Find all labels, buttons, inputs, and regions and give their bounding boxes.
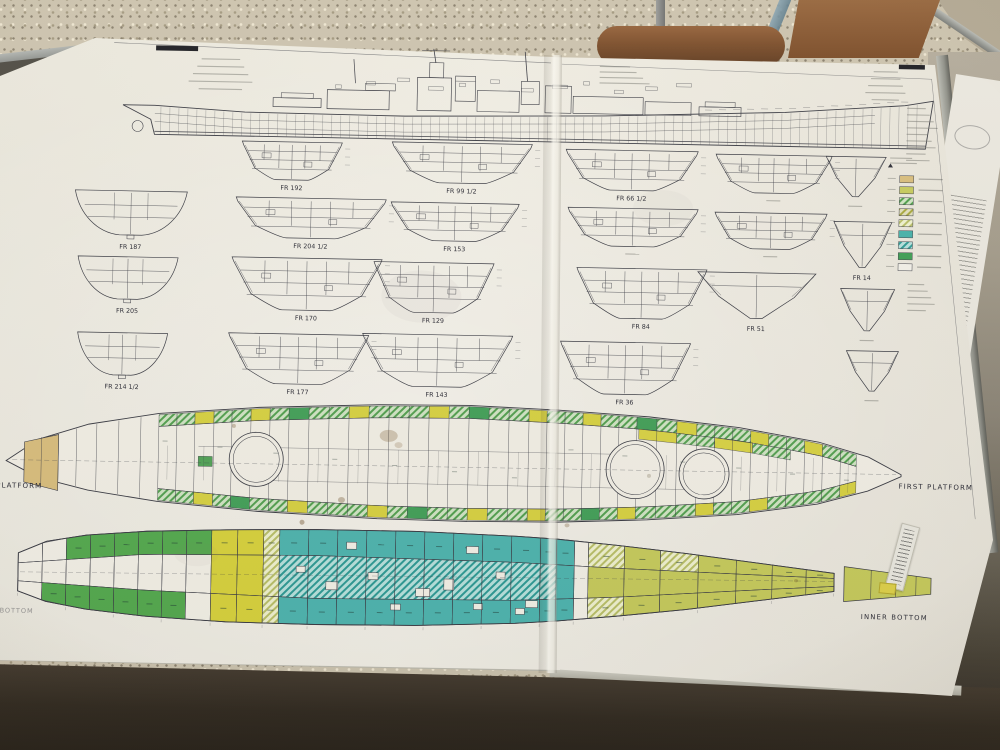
hull-section	[833, 221, 892, 268]
paper-stain	[381, 270, 462, 324]
legend-swatch	[899, 209, 913, 216]
hull-section	[77, 332, 168, 380]
frame-label: FR 36	[615, 399, 633, 406]
legend-swatch	[898, 242, 912, 249]
hull-section	[565, 149, 706, 192]
legend-swatch	[899, 187, 913, 194]
first-platform-plan: FIRST PLATFORMFIRST PLATFORM	[0, 396, 974, 531]
legend-marker	[888, 163, 893, 167]
hull-section	[236, 197, 395, 240]
hull-section	[560, 341, 699, 396]
frame-label: FR 177	[286, 389, 308, 396]
hull-section	[715, 154, 840, 194]
hull-section	[840, 289, 895, 332]
hull-section	[846, 351, 899, 392]
deck-label-inner-bottom-left: INNER BOTTOM	[0, 606, 34, 615]
deck-label-first-platform-left: FIRST PLATFORM	[0, 481, 42, 490]
legend-swatch	[899, 231, 913, 238]
barbette-circle	[606, 440, 665, 499]
hull-section	[362, 333, 521, 388]
chair-backrest	[788, 0, 940, 58]
frame-label: FR 153	[443, 246, 465, 253]
plan-content: FR 187FR 205FR 214 1/2FR 192FR 99 1/2FR …	[0, 30, 984, 642]
title-mark-right	[899, 65, 925, 70]
paper-stain	[564, 523, 569, 527]
hull-section	[714, 212, 835, 250]
hull-section	[390, 202, 527, 243]
hull-section	[74, 190, 187, 240]
photo-scene: FR 187FR 205FR 214 1/2FR 192FR 99 1/2FR …	[0, 0, 1000, 750]
blueprint-linework: FR 187FR 205FR 214 1/2FR 192FR 99 1/2FR …	[0, 0, 1000, 750]
legend-swatch	[900, 176, 914, 183]
legend-swatch	[899, 198, 913, 205]
secondary-document-sketch	[953, 123, 992, 152]
frame-label: FR 143	[425, 392, 447, 399]
hull-section	[576, 267, 715, 320]
hull-section	[242, 141, 351, 181]
frame-label: FR 204 1/2	[293, 243, 327, 251]
frame-label: FR 99 1/2	[446, 188, 476, 196]
frame-label: FR 205	[116, 308, 138, 315]
frame-label: FR 51	[747, 326, 765, 333]
barbette-circle	[679, 448, 730, 499]
legend	[886, 157, 943, 271]
hull-section	[231, 257, 390, 312]
barbette-circle	[229, 432, 284, 487]
hull-section	[228, 333, 377, 386]
hull-section	[697, 272, 816, 320]
frame-label: FR 192	[280, 185, 302, 192]
yellow-tab	[878, 582, 896, 595]
paper-stain	[299, 520, 304, 525]
frame-label: FR 187	[119, 244, 141, 251]
hull-section	[392, 142, 541, 185]
deck-label-inner-bottom: INNER BOTTOM	[861, 613, 928, 622]
hull-section	[825, 156, 886, 197]
legend-swatch	[898, 264, 912, 271]
legend-swatch	[899, 220, 913, 227]
frame-label: FR 214 1/2	[104, 383, 138, 391]
frame-label: FR 84	[632, 324, 650, 331]
inner-bottom-plan: INNER BOTTOMINNER BOTTOM	[0, 523, 932, 641]
frame-label: FR 14	[853, 275, 871, 282]
legend-swatch	[898, 253, 912, 260]
frame-label: FR 170	[295, 315, 317, 322]
deck-label-first-platform: FIRST PLATFORM	[898, 483, 973, 492]
hull-section	[77, 256, 178, 304]
